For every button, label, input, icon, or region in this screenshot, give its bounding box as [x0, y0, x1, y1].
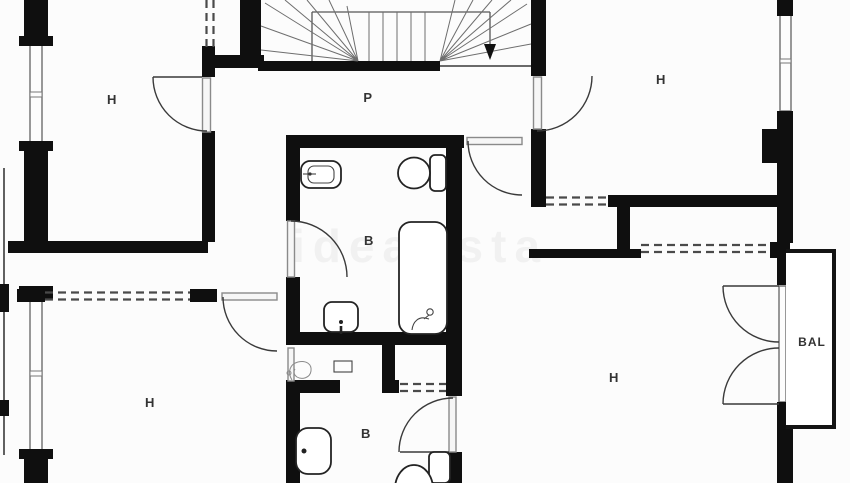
balcony-door-frame	[779, 286, 786, 402]
bidet-icon	[301, 161, 341, 188]
room-label-bathroom-secondary: B	[361, 426, 371, 441]
window-mullion	[780, 59, 791, 63]
bathtub-icon	[399, 222, 447, 334]
room-label-balcony: BAL	[798, 335, 826, 349]
window-mullion	[30, 371, 42, 376]
room-label-bedroom-bottom-right: H	[609, 370, 619, 385]
floor-plan-image: idealista	[0, 0, 850, 483]
room-label-hallway: P	[363, 90, 372, 105]
room-label-bedroom-top-left: H	[107, 92, 117, 107]
bidet2-icon	[296, 428, 331, 474]
room-label-bedroom-bottom-left: H	[145, 395, 155, 410]
toilet-icon	[398, 155, 446, 191]
floor-plan-svg: idealista	[0, 0, 850, 483]
window-mullion	[30, 92, 42, 97]
room-label-bedroom-top-right: H	[656, 72, 666, 87]
room-label-bathroom-main: B	[364, 233, 374, 248]
sink-icon	[324, 302, 358, 334]
